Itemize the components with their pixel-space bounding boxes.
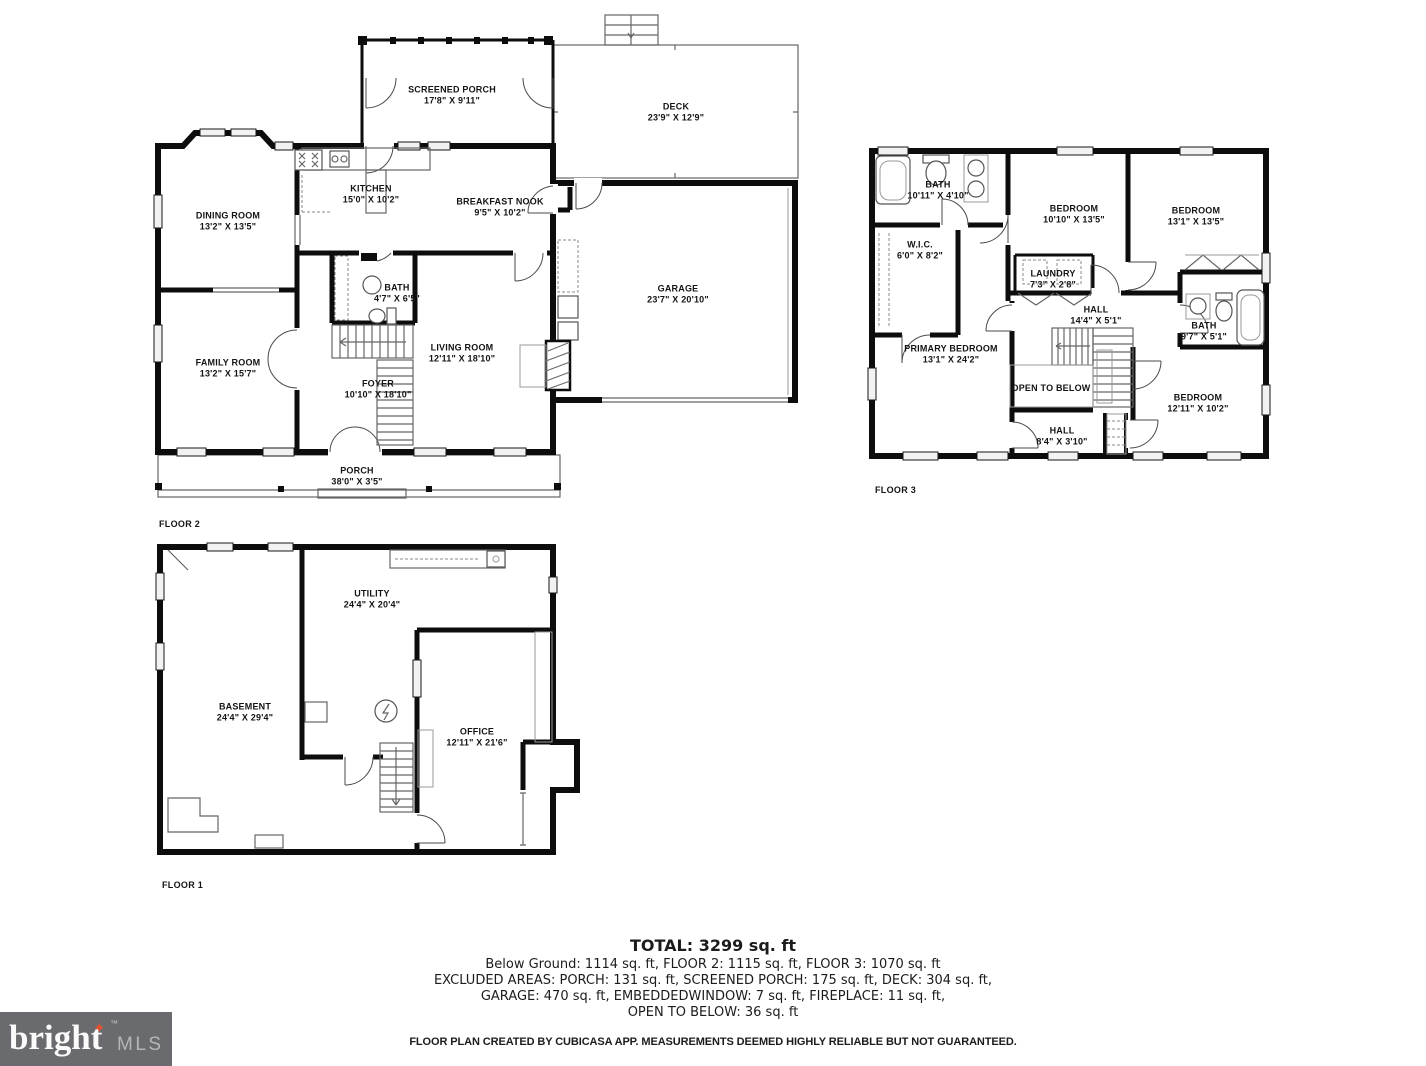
bright-mls-logo: bright ✦ ™ MLS <box>0 1012 172 1066</box>
excluded-areas-line1: EXCLUDED AREAS: PORCH: 131 sq. ft, SCREE… <box>0 973 1426 989</box>
room-label-living-room: LIVING ROOM 12'11" X 18'10" <box>429 343 495 364</box>
room-label-kitchen: KITCHEN 15'0" X 10'2" <box>343 184 399 205</box>
room-label-foyer: FOYER 10'10" X 18'10" <box>345 379 412 400</box>
room-dims: 13'2" X 15'7" <box>196 368 261 379</box>
room-name: LIVING ROOM <box>429 343 495 354</box>
room-name: HALL <box>1070 305 1121 316</box>
room-dims: 23'7" X 20'10" <box>647 294 709 305</box>
room-name: LAUNDRY <box>1030 269 1076 280</box>
room-dims: 13'2" X 13'5" <box>196 221 260 232</box>
room-dims: 10'10" X 13'5" <box>1043 214 1105 225</box>
logo-star-icon: ✦ <box>93 1021 106 1036</box>
room-label-screened-porch: SCREENED PORCH 17'8" X 9'11" <box>408 85 496 106</box>
floor1-tag: FLOOR 1 <box>162 880 203 890</box>
room-dims: 12'11" X 18'10" <box>429 353 495 364</box>
room-label-bath1-floor3: BATH 10'11" X 4'10" <box>907 180 968 201</box>
room-name: BATH <box>374 283 420 294</box>
room-label-breakfast-nook: BREAKFAST NOOK 9'5" X 10'2" <box>456 197 543 218</box>
room-name: DINING ROOM <box>196 211 260 222</box>
room-dims: 12'11" X 21'6" <box>446 737 507 748</box>
floor1-basement-features <box>168 798 283 848</box>
room-label-porch: PORCH 38'0" X 3'5" <box>331 466 382 487</box>
room-name: BEDROOM <box>1043 204 1105 215</box>
floor2-deck <box>553 15 798 178</box>
room-name: OPEN TO BELOW <box>1012 383 1091 394</box>
total-area: TOTAL: 3299 sq. ft <box>0 937 1426 955</box>
room-name: PORCH <box>331 466 382 477</box>
floor-areas-line: Below Ground: 1114 sq. ft, FLOOR 2: 1115… <box>0 957 1426 973</box>
room-name: BATH <box>1181 321 1227 332</box>
room-name: PRIMARY BEDROOM <box>904 344 998 355</box>
room-name: UTILITY <box>344 589 400 600</box>
room-name: FAMILY ROOM <box>196 358 261 369</box>
room-name: W.I.C. <box>897 240 943 251</box>
excluded-areas-line2: GARAGE: 470 sq. ft, EMBEDDEDWINDOW: 7 sq… <box>0 989 1426 1005</box>
room-dims: 17'8" X 9'11" <box>408 95 496 106</box>
room-dims: 10'11" X 4'10" <box>907 190 968 201</box>
room-label-open-to-below: OPEN TO BELOW <box>1012 383 1091 394</box>
room-dims: 9'5" X 10'2" <box>456 207 543 218</box>
room-dims: 12'11" X 10'2" <box>1167 403 1228 414</box>
room-dims: 23'9" X 12'9" <box>648 112 704 123</box>
room-name: FOYER <box>345 379 412 390</box>
room-name: HALL <box>1036 426 1087 437</box>
room-name: BEDROOM <box>1168 206 1224 217</box>
room-name: BREAKFAST NOOK <box>456 197 543 208</box>
room-label-bedroom1: BEDROOM 10'10" X 13'5" <box>1043 204 1105 225</box>
room-dims: 9'7" X 5'1" <box>1181 331 1227 342</box>
room-dims: 13'1" X 13'5" <box>1168 216 1224 227</box>
room-label-wic: W.I.C. 6'0" X 8'2" <box>897 240 943 261</box>
floor1-interior-walls <box>302 547 553 852</box>
room-dims: 38'0" X 3'5" <box>331 476 382 487</box>
room-name: KITCHEN <box>343 184 399 195</box>
room-label-laundry: LAUNDRY 7'3" X 2'8" <box>1030 269 1076 290</box>
room-dims: 13'1" X 24'2" <box>904 354 998 365</box>
room-label-hall1: HALL 14'4" X 5'1" <box>1070 305 1121 326</box>
room-dims: 7'3" X 2'8" <box>1030 279 1076 290</box>
room-label-deck: DECK 23'9" X 12'9" <box>648 102 704 123</box>
room-label-family-room: FAMILY ROOM 13'2" X 15'7" <box>196 358 261 379</box>
floor2-tag: FLOOR 2 <box>159 519 200 529</box>
floor1-utility-fixtures <box>305 550 552 787</box>
room-dims: 4'7" X 6'5" <box>374 293 420 304</box>
room-label-garage: GARAGE 23'7" X 20'10" <box>647 284 709 305</box>
room-name: SCREENED PORCH <box>408 85 496 96</box>
room-name: BEDROOM <box>1167 393 1228 404</box>
logo-suffix-text: MLS <box>117 1034 164 1056</box>
room-dims: 6'0" X 8'2" <box>897 250 943 261</box>
room-label-utility: UTILITY 24'4" X 20'4" <box>344 589 400 610</box>
room-label-bath2-floor3: BATH 9'7" X 5'1" <box>1181 321 1227 342</box>
room-label-office: OFFICE 12'11" X 21'6" <box>446 727 507 748</box>
room-name: OFFICE <box>446 727 507 738</box>
room-label-hall2: HALL 8'4" X 3'10" <box>1036 426 1087 447</box>
floor1-stairs <box>380 743 413 812</box>
logo-trademark: ™ <box>110 1019 118 1028</box>
floor2-fireplace <box>520 341 570 390</box>
room-label-bath-floor2: BATH 4'7" X 6'5" <box>374 283 420 304</box>
area-summary: TOTAL: 3299 sq. ft Below Ground: 1114 sq… <box>0 937 1426 1048</box>
room-label-primary-bedroom: PRIMARY BEDROOM 13'1" X 24'2" <box>904 344 998 365</box>
room-label-basement: BASEMENT 24'4" X 29'4" <box>217 702 273 723</box>
room-dims: 24'4" X 20'4" <box>344 599 400 610</box>
room-dims: 8'4" X 3'10" <box>1036 436 1087 447</box>
room-name: DECK <box>648 102 704 113</box>
room-dims: 24'4" X 29'4" <box>217 712 273 723</box>
floor3-tag: FLOOR 3 <box>875 485 916 495</box>
room-name: BASEMENT <box>217 702 273 713</box>
floorplan-page: SCREENED PORCH 17'8" X 9'11" DECK 23'9" … <box>0 0 1426 1066</box>
disclaimer-text: FLOOR PLAN CREATED BY CUBICASA APP. MEAS… <box>0 1036 1426 1048</box>
floor3-stairs <box>1010 328 1133 407</box>
room-dims: 14'4" X 5'1" <box>1070 315 1121 326</box>
room-label-bedroom3: BEDROOM 12'11" X 10'2" <box>1167 393 1228 414</box>
room-label-dining-room: DINING ROOM 13'2" X 13'5" <box>196 211 260 232</box>
room-name: BATH <box>907 180 968 191</box>
logo-brand-text: bright <box>9 1012 102 1064</box>
excluded-areas-line3: OPEN TO BELOW: 36 sq. ft <box>0 1005 1426 1021</box>
room-label-bedroom2: BEDROOM 13'1" X 13'5" <box>1168 206 1224 227</box>
room-name: GARAGE <box>647 284 709 295</box>
room-dims: 15'0" X 10'2" <box>343 194 399 205</box>
room-dims: 10'10" X 18'10" <box>345 389 412 400</box>
